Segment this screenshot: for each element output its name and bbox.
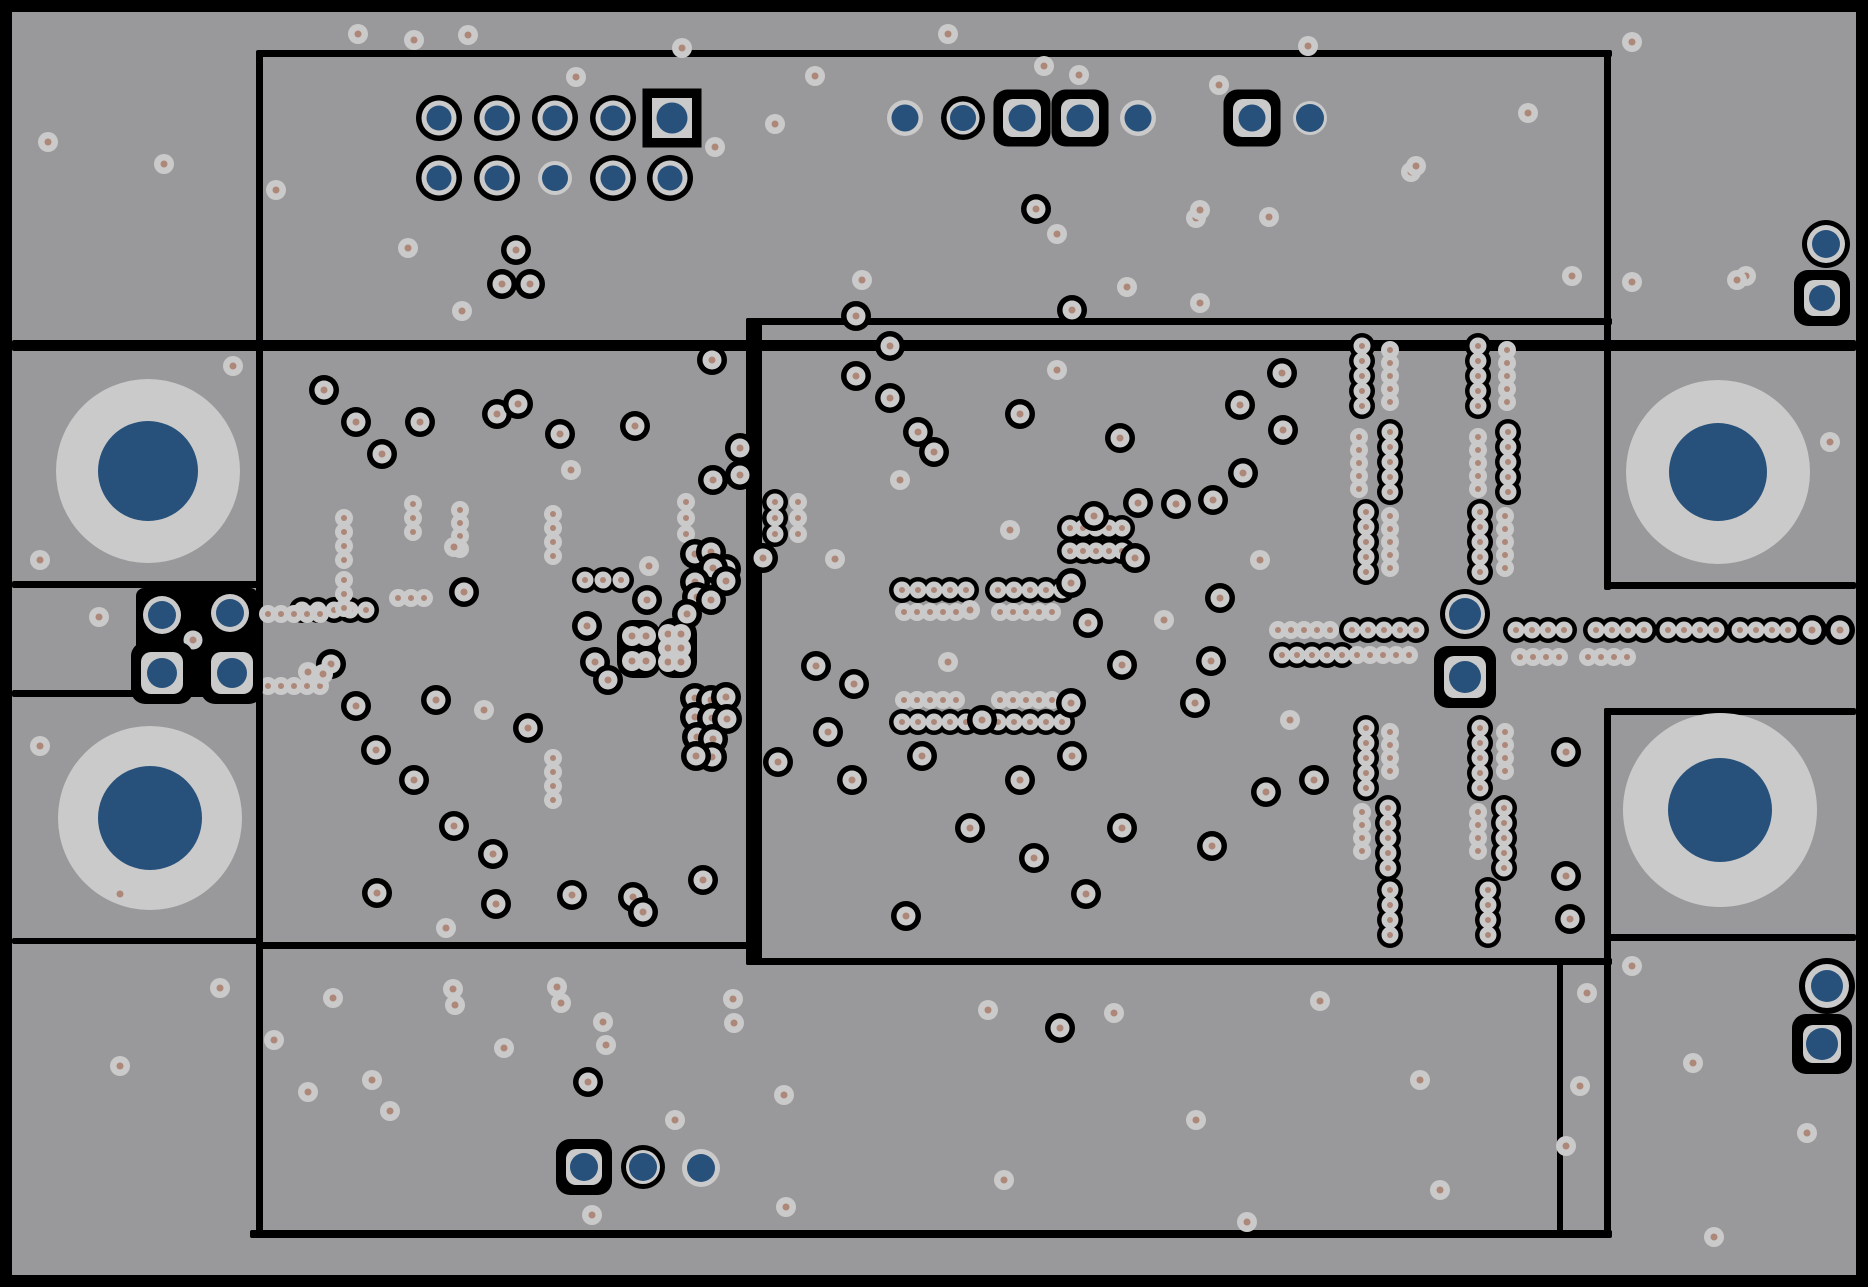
via-chain-drill — [457, 520, 463, 526]
via-chain-drill — [1530, 654, 1536, 660]
via-chain-drill — [1504, 360, 1510, 366]
via-drill — [967, 825, 974, 832]
via-chain-drill — [1363, 785, 1369, 791]
via-drill — [1263, 789, 1270, 796]
via-chain-drill — [1010, 697, 1016, 703]
via-drill — [1305, 43, 1312, 50]
via-chain-drill — [1529, 627, 1535, 633]
via-chain-drill — [901, 697, 907, 703]
via-chain-drill — [1477, 740, 1483, 746]
via-drill — [589, 1212, 596, 1219]
via-drill — [1192, 700, 1199, 707]
via-drill — [1287, 717, 1294, 724]
via-chain-drill — [1365, 627, 1371, 633]
via-drill — [672, 1117, 679, 1124]
via-chain-drill — [550, 797, 556, 803]
via-chain-drill — [1477, 509, 1483, 515]
via-chain-drill — [1413, 627, 1419, 633]
via-drill — [931, 449, 938, 456]
via-chain-drill — [1301, 627, 1307, 633]
via-drill — [644, 597, 651, 604]
via-drill — [665, 659, 672, 666]
via-chain-drill — [1309, 652, 1315, 658]
via-drill — [273, 187, 280, 194]
via-chain-drill — [1387, 459, 1393, 465]
mounting-hole-drill — [1669, 423, 1767, 521]
via-drill — [1237, 402, 1244, 409]
via-drill — [465, 32, 472, 39]
via-drill — [887, 343, 894, 350]
via-drill — [919, 753, 926, 760]
pad-drill — [1449, 661, 1481, 693]
via-drill — [825, 729, 832, 736]
via-drill — [411, 37, 418, 44]
via-drill — [527, 281, 534, 288]
via-chain-drill — [1753, 627, 1759, 633]
pcb-board-view — [0, 0, 1868, 1287]
via-drill — [853, 313, 860, 320]
via-chain-drill — [1611, 654, 1617, 660]
via-chain-drill — [265, 611, 271, 617]
via-drill — [1584, 990, 1591, 997]
via-drill — [737, 445, 744, 452]
via-drill — [1629, 963, 1636, 970]
via-drill — [1001, 1177, 1008, 1184]
via-drill — [1216, 82, 1223, 89]
via-drill — [321, 387, 328, 394]
via-drill — [783, 1204, 790, 1211]
pad-drill — [1809, 285, 1835, 311]
via-drill — [632, 423, 639, 430]
via-chain-drill — [341, 557, 347, 563]
pad-drill — [543, 106, 568, 131]
via-chain-drill — [550, 755, 556, 761]
via-chain-drill — [1475, 473, 1481, 479]
via-chain-drill — [1381, 627, 1387, 633]
via-chain-drill — [1356, 460, 1362, 466]
via-chain-drill — [1036, 697, 1042, 703]
via-chain-drill — [600, 577, 606, 583]
via-drill — [903, 913, 910, 920]
via-chain-drill — [1349, 627, 1355, 633]
via-chain-drill — [1279, 652, 1285, 658]
pad-drill — [1812, 230, 1840, 258]
via-chain-drill — [582, 577, 588, 583]
via-chain-drill — [795, 531, 801, 537]
via-drill — [640, 909, 647, 916]
via-chain-drill — [1356, 447, 1362, 453]
plane-split-line — [12, 581, 258, 588]
via-drill — [1266, 214, 1273, 221]
via-drill — [592, 659, 599, 666]
via-drill — [1217, 595, 1224, 602]
via-drill — [417, 419, 424, 426]
via-chain-drill — [1501, 865, 1507, 871]
via-chain-drill — [1505, 489, 1511, 495]
via-drill — [887, 395, 894, 402]
via-chain-drill — [1359, 822, 1365, 828]
via-chain-drill — [1477, 755, 1483, 761]
via-chain-drill — [1475, 486, 1481, 492]
via-chain-drill — [1477, 785, 1483, 791]
via-chain-drill — [927, 697, 933, 703]
via-chain-drill — [1502, 729, 1508, 735]
via-drill — [1437, 1187, 1444, 1194]
via-chain-drill — [1387, 917, 1393, 923]
via-drill — [1057, 1025, 1064, 1032]
via-chain-drill — [1397, 627, 1403, 633]
via-drill — [643, 633, 650, 640]
via-chain-drill — [1502, 513, 1508, 519]
via-chain-drill — [1502, 755, 1508, 761]
via-drill — [217, 985, 224, 992]
via-chain-drill — [1387, 742, 1393, 748]
via-chain-drill — [410, 515, 416, 521]
via-chain-drill — [550, 511, 556, 517]
via-chain-drill — [1363, 755, 1369, 761]
via-chain-drill — [304, 611, 310, 617]
via-drill — [724, 716, 731, 723]
via-drill — [450, 986, 457, 993]
via-chain-drill — [1485, 887, 1491, 893]
via-chain-drill — [1363, 554, 1369, 560]
via-drill — [330, 995, 337, 1002]
via-drill — [1804, 1130, 1811, 1137]
via-chain-drill — [291, 683, 297, 689]
via-chain-drill — [550, 553, 556, 559]
via-drill — [1069, 307, 1076, 314]
via-chain-drill — [1501, 835, 1507, 841]
via-drill — [1629, 279, 1636, 286]
via-drill — [305, 1089, 312, 1096]
via-chain-drill — [1327, 627, 1333, 633]
via-chain-drill — [914, 609, 920, 615]
via-drill — [1208, 658, 1215, 665]
via-chain-drill — [1477, 725, 1483, 731]
via-chain-drill — [1387, 513, 1393, 519]
via-drill — [684, 611, 691, 618]
via-chain-drill — [1387, 347, 1393, 353]
via-drill — [1690, 1060, 1697, 1067]
via-drill — [1017, 777, 1024, 784]
via-drill — [96, 614, 103, 621]
via-drill — [1041, 63, 1048, 70]
via-chain-drill — [1502, 526, 1508, 532]
via-drill — [1076, 72, 1083, 79]
via-chain-drill — [1359, 373, 1365, 379]
via-chain-drill — [997, 609, 1003, 615]
via-chain-drill — [1545, 627, 1551, 633]
via-drill — [979, 717, 986, 724]
via-chain-drill — [1475, 388, 1481, 394]
pad-drill — [147, 658, 177, 688]
via-chain-drill — [1505, 459, 1511, 465]
via-chain-drill — [1359, 403, 1365, 409]
via-drill — [760, 555, 767, 562]
via-drill — [515, 401, 522, 408]
via-chain-drill — [278, 611, 284, 617]
via-chain-drill — [1697, 627, 1703, 633]
via-drill — [1209, 843, 1216, 850]
via-drill — [525, 725, 532, 732]
via-chain-drill — [1475, 835, 1481, 841]
via-chain-drill — [1556, 654, 1562, 660]
via-chain-drill — [963, 587, 969, 593]
via-chain-drill — [1769, 627, 1775, 633]
via-chain-drill — [1475, 403, 1481, 409]
via-chain-drill — [1502, 742, 1508, 748]
pad-drill — [1806, 1028, 1838, 1060]
via-drill — [373, 747, 380, 754]
via-chain-drill — [915, 587, 921, 593]
via-chain-drill — [1475, 447, 1481, 453]
via-drill — [584, 623, 591, 630]
via-chain-drill — [550, 783, 556, 789]
via-drill — [678, 645, 685, 652]
via-chain-drill — [683, 499, 689, 505]
via-drill — [117, 891, 124, 898]
via-chain-drill — [1475, 343, 1481, 349]
pad-drill — [1449, 598, 1481, 630]
via-drill — [1173, 501, 1180, 508]
via-chain-drill — [1106, 548, 1112, 554]
pad-drill — [570, 1153, 598, 1181]
via-drill — [1111, 1010, 1118, 1017]
via-drill — [1069, 753, 1076, 760]
via-drill — [452, 1002, 459, 1009]
via-drill — [379, 451, 386, 458]
via-chain-drill — [1504, 347, 1510, 353]
via-chain-drill — [1027, 587, 1033, 593]
via-chain-drill — [1359, 343, 1365, 349]
via-chain-drill — [1387, 444, 1393, 450]
via-chain-drill — [291, 611, 297, 617]
via-chain-drill — [408, 595, 414, 601]
via-chain-drill — [1477, 770, 1483, 776]
via-chain-drill — [1359, 848, 1365, 854]
via-chain-drill — [1356, 434, 1362, 440]
via-chain-drill — [953, 697, 959, 703]
via-drill — [387, 1108, 394, 1115]
via-chain-drill — [1367, 652, 1373, 658]
via-chain-drill — [1502, 565, 1508, 571]
via-drill — [569, 892, 576, 899]
via-drill — [967, 607, 974, 614]
via-drill — [851, 681, 858, 688]
via-drill — [1809, 627, 1816, 634]
via-chain-drill — [915, 719, 921, 725]
via-chain-drill — [1359, 358, 1365, 364]
via-chain-drill — [410, 501, 416, 507]
via-chain-drill — [1485, 917, 1491, 923]
pad-drill — [485, 106, 510, 131]
via-drill — [1563, 1143, 1570, 1150]
via-chain-drill — [1477, 569, 1483, 575]
via-drill — [1068, 580, 1075, 587]
via-chain-drill — [341, 577, 347, 583]
via-drill — [1317, 998, 1324, 1005]
via-drill — [1033, 206, 1040, 213]
via-drill — [374, 890, 381, 897]
via-drill — [1244, 1219, 1251, 1226]
via-drill — [501, 1045, 508, 1052]
via-drill — [557, 431, 564, 438]
via-drill — [603, 1042, 610, 1049]
via-drill — [585, 1079, 592, 1086]
via-chain-drill — [997, 697, 1003, 703]
via-drill — [1161, 617, 1168, 624]
via-chain-drill — [1475, 809, 1481, 815]
pad-drill — [629, 1153, 657, 1181]
via-chain-drill — [1624, 654, 1630, 660]
via-chain-drill — [795, 515, 801, 521]
via-chain-drill — [1067, 548, 1073, 554]
via-chain-drill — [395, 595, 401, 601]
via-drill — [723, 578, 730, 585]
via-chain-drill — [1059, 719, 1065, 725]
pad-drill — [217, 658, 247, 688]
via-drill — [678, 631, 685, 638]
via-chain-drill — [1387, 755, 1393, 761]
via-drill — [665, 645, 672, 652]
mounting-hole-drill — [1668, 758, 1772, 862]
via-drill — [723, 694, 730, 701]
via-chain-drill — [1387, 360, 1393, 366]
via-drill — [945, 31, 952, 38]
via-chain-drill — [1477, 539, 1483, 545]
via-drill — [629, 658, 636, 665]
via-drill — [1193, 1117, 1200, 1124]
via-drill — [353, 419, 360, 426]
via-chain-drill — [940, 609, 946, 615]
via-drill — [161, 161, 168, 168]
via-drill — [369, 1077, 376, 1084]
via-drill — [775, 759, 782, 766]
via-drill — [1091, 513, 1098, 520]
via-drill — [443, 925, 450, 932]
via-drill — [1279, 370, 1286, 377]
via-chain-drill — [914, 697, 920, 703]
via-chain-drill — [1385, 820, 1391, 826]
via-drill — [985, 1007, 992, 1014]
via-chain-drill — [1543, 654, 1549, 660]
via-drill — [461, 589, 468, 596]
via-chain-drill — [1356, 486, 1362, 492]
via-chain-drill — [1505, 444, 1511, 450]
via-chain-drill — [1363, 539, 1369, 545]
via-chain-drill — [1011, 719, 1017, 725]
via-chain-drill — [1585, 654, 1591, 660]
via-drill — [700, 877, 707, 884]
via-chain-drill — [1713, 627, 1719, 633]
via-chain-drill — [1387, 887, 1393, 893]
via-drill — [1569, 273, 1576, 280]
via-chain-drill — [1387, 526, 1393, 532]
plane-split-line — [1607, 934, 1856, 941]
via-drill — [915, 429, 922, 436]
via-chain-drill — [278, 683, 284, 689]
plane-split-line — [746, 958, 1612, 965]
via-chain-drill — [772, 515, 778, 521]
via-chain-drill — [1119, 525, 1125, 531]
via-chain-drill — [1036, 609, 1042, 615]
via-drill — [493, 901, 500, 908]
via-chain-drill — [947, 719, 953, 725]
via-drill — [405, 245, 412, 252]
via-drill — [1117, 435, 1124, 442]
via-chain-drill — [1387, 399, 1393, 405]
plane-split-line — [1604, 582, 1856, 589]
via-chain-drill — [1380, 652, 1386, 658]
plane-split-line — [746, 318, 762, 965]
via-chain-drill — [1517, 654, 1523, 660]
via-chain-drill — [1049, 697, 1055, 703]
pad-drill — [658, 166, 683, 191]
via-chain-drill — [618, 577, 624, 583]
via-chain-drill — [931, 719, 937, 725]
via-drill — [117, 1063, 124, 1070]
via-drill — [693, 753, 700, 760]
via-chain-drill — [1665, 627, 1671, 633]
via-chain-drill — [940, 697, 946, 703]
via-drill — [643, 658, 650, 665]
via-chain-drill — [1501, 820, 1507, 826]
via-chain-drill — [1593, 627, 1599, 633]
via-drill — [832, 556, 839, 563]
via-drill — [353, 703, 360, 710]
pad-drill — [1009, 105, 1036, 132]
via-drill — [271, 1037, 278, 1044]
via-chain-drill — [1387, 768, 1393, 774]
via-chain-drill — [1505, 474, 1511, 480]
via-chain-drill — [1010, 609, 1016, 615]
via-drill — [1132, 555, 1139, 562]
via-drill — [1734, 277, 1741, 284]
via-chain-drill — [421, 595, 427, 601]
via-chain-drill — [1501, 805, 1507, 811]
via-chain-drill — [1504, 399, 1510, 405]
via-drill — [573, 74, 580, 81]
plane-split-line — [258, 942, 755, 949]
via-chain-drill — [1363, 524, 1369, 530]
via-chain-drill — [1363, 569, 1369, 575]
via-drill — [1257, 557, 1264, 564]
pad-drill — [485, 166, 510, 191]
via-chain-drill — [1359, 809, 1365, 815]
via-chain-drill — [1406, 652, 1412, 658]
via-chain-drill — [1513, 627, 1519, 633]
via-chain-drill — [1359, 388, 1365, 394]
via-chain-drill — [1502, 539, 1508, 545]
via-chain-drill — [1275, 627, 1281, 633]
pad-drill — [216, 599, 244, 627]
via-chain-drill — [899, 587, 905, 593]
via-chain-drill — [457, 507, 463, 513]
plane-split-line — [1557, 958, 1563, 1234]
via-chain-drill — [550, 539, 556, 545]
via-drill — [320, 671, 327, 678]
via-drill — [945, 659, 952, 666]
via-drill — [499, 281, 506, 288]
pad-drill — [657, 103, 688, 134]
via-chain-drill — [772, 499, 778, 505]
mounting-hole-drill — [98, 421, 198, 521]
via-drill — [1240, 470, 1247, 477]
via-chain-drill — [1043, 719, 1049, 725]
via-chain-drill — [1363, 740, 1369, 746]
via-drill — [772, 121, 779, 128]
via-drill — [1135, 500, 1142, 507]
